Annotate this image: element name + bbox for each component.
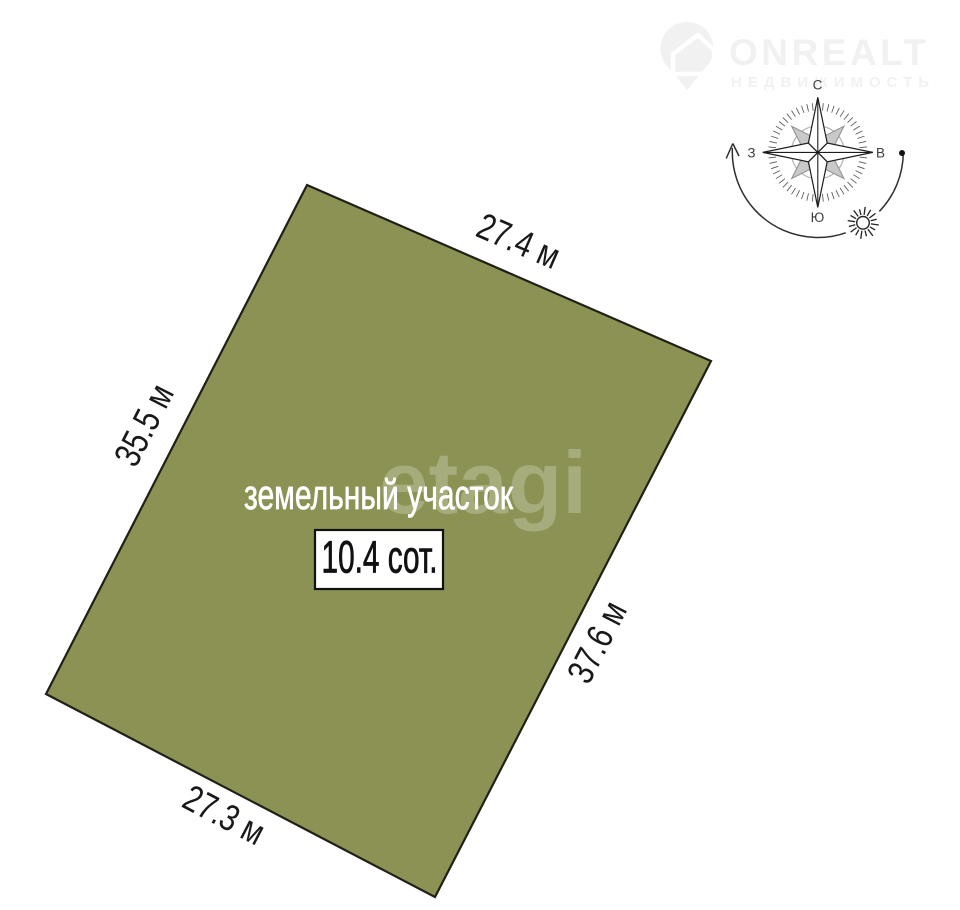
svg-text:С: С [813,78,823,93]
svg-text:10.4 сот.: 10.4 сот. [322,532,438,583]
svg-text:ONREALT: ONREALT [729,32,930,73]
svg-text:Ю: Ю [811,210,825,225]
svg-text:З: З [747,146,755,161]
svg-text:НЕДВИЖИМОСТЬ: НЕДВИЖИМОСТЬ [731,74,935,91]
svg-text:В: В [876,146,885,161]
svg-text:земельный участок: земельный участок [244,471,513,518]
